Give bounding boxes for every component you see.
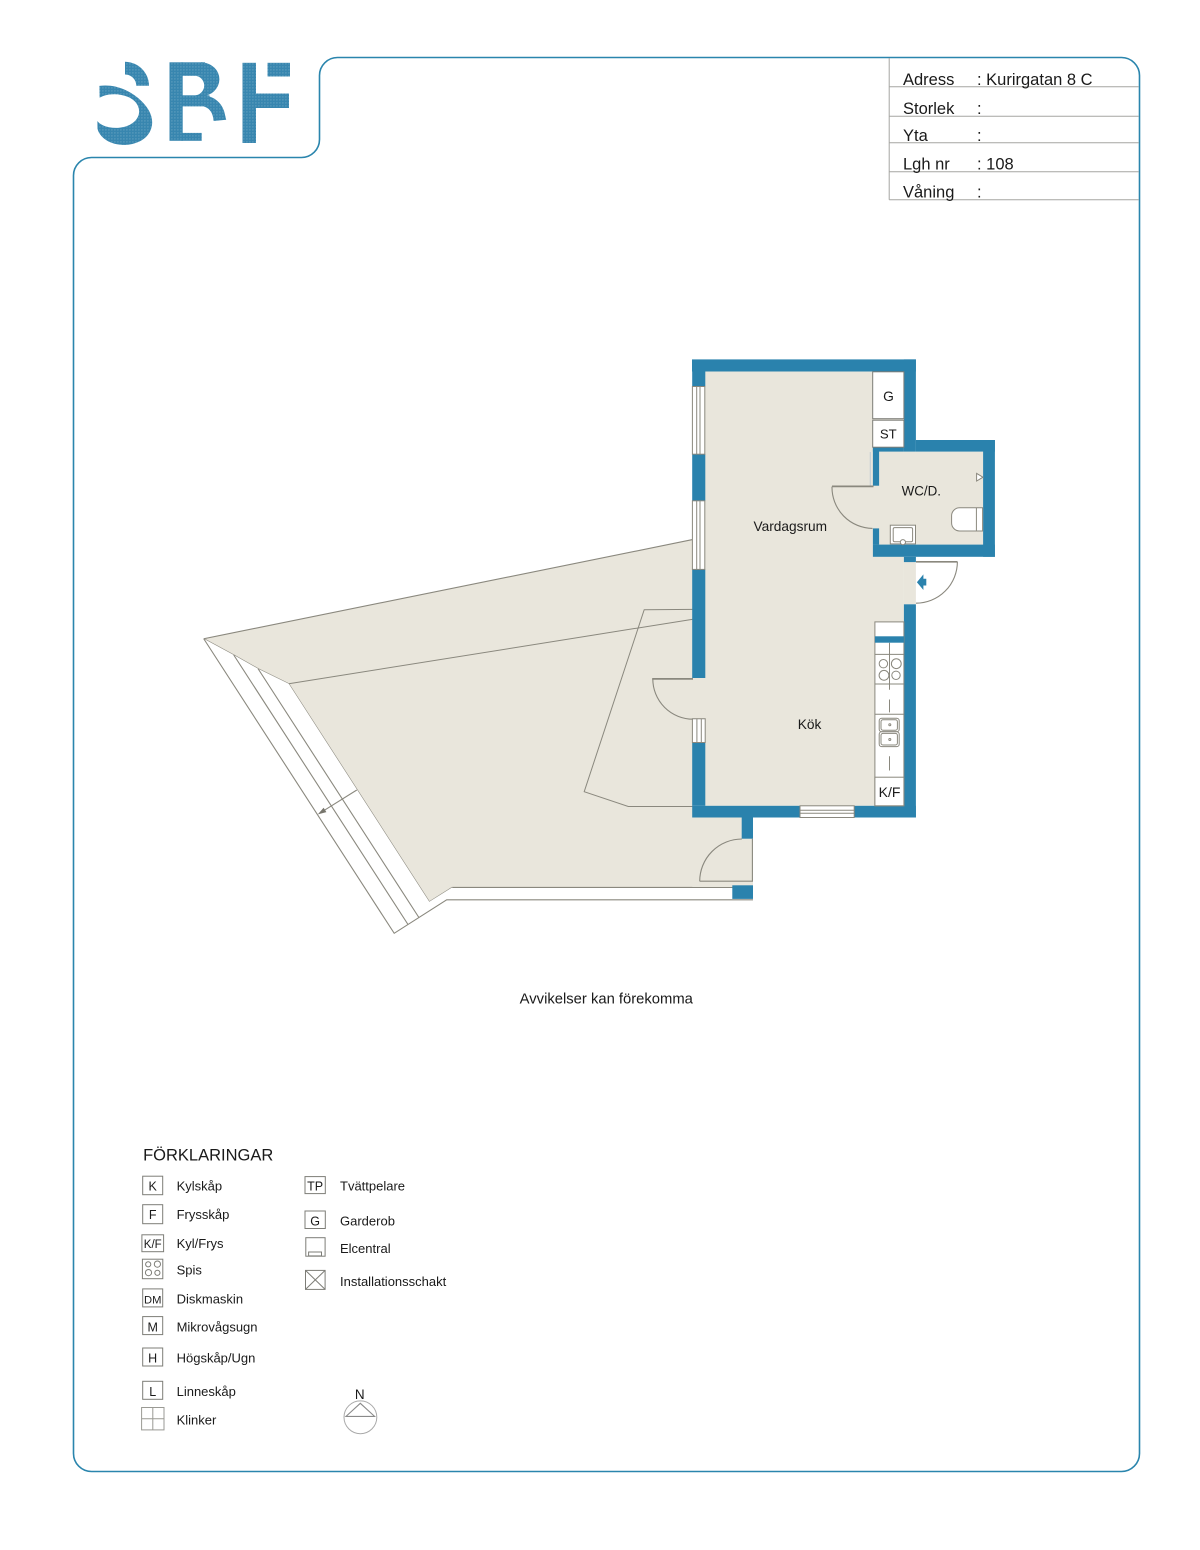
- svg-text:G: G: [883, 389, 894, 404]
- svg-text:Yta: Yta: [903, 127, 929, 145]
- svg-text:Frysskåp: Frysskåp: [177, 1207, 230, 1222]
- svg-text:Storlek: Storlek: [903, 100, 955, 118]
- svg-text:Vardagsrum: Vardagsrum: [754, 519, 828, 534]
- svg-text:K/F: K/F: [879, 784, 901, 800]
- svg-text::: :: [977, 184, 982, 202]
- svg-text::: :: [977, 100, 982, 118]
- svg-text:Diskmaskin: Diskmaskin: [177, 1291, 243, 1306]
- svg-text:: Kurirgatan 8 C: : Kurirgatan 8 C: [977, 71, 1093, 89]
- svg-text:Elcentral: Elcentral: [340, 1241, 391, 1256]
- svg-text:K/F: K/F: [144, 1239, 162, 1251]
- svg-text:DM: DM: [144, 1294, 161, 1306]
- svg-text:Adress: Adress: [903, 71, 954, 89]
- svg-text:ST: ST: [880, 426, 897, 441]
- svg-text:Kyl/Frys: Kyl/Frys: [177, 1236, 224, 1251]
- svg-text:Kylskåp: Kylskåp: [177, 1178, 223, 1193]
- svg-text:Klinker: Klinker: [177, 1413, 217, 1428]
- svg-text:Lgh nr: Lgh nr: [903, 156, 950, 174]
- svg-text:L: L: [149, 1385, 156, 1399]
- svg-text:WC/D.: WC/D.: [902, 484, 941, 499]
- svg-text:Installationsschakt: Installationsschakt: [340, 1274, 447, 1289]
- svg-text:Högskåp/Ugn: Högskåp/Ugn: [177, 1350, 256, 1365]
- svg-text:Garderob: Garderob: [340, 1213, 395, 1228]
- svg-text:M: M: [147, 1320, 157, 1334]
- svg-text:: 108: : 108: [977, 156, 1014, 174]
- svg-text:G: G: [310, 1214, 320, 1228]
- svg-text:N: N: [355, 1387, 365, 1402]
- svg-text:TP: TP: [307, 1179, 323, 1193]
- svg-text:F: F: [149, 1208, 157, 1222]
- svg-text:Avvikelser kan förekomma: Avvikelser kan förekomma: [520, 992, 694, 1008]
- svg-text:Tvättpelare: Tvättpelare: [340, 1178, 405, 1193]
- svg-text:Våning: Våning: [903, 184, 954, 202]
- svg-text:K: K: [149, 1179, 158, 1193]
- svg-text:H: H: [148, 1351, 157, 1365]
- svg-text:Linneskåp: Linneskåp: [177, 1384, 236, 1399]
- svg-text::: :: [977, 127, 982, 145]
- svg-text:Kök: Kök: [798, 717, 822, 732]
- svg-text:Spis: Spis: [177, 1263, 203, 1278]
- svg-text:Mikrovågsugn: Mikrovågsugn: [177, 1319, 258, 1334]
- svg-text:FÖRKLARINGAR: FÖRKLARINGAR: [143, 1146, 273, 1164]
